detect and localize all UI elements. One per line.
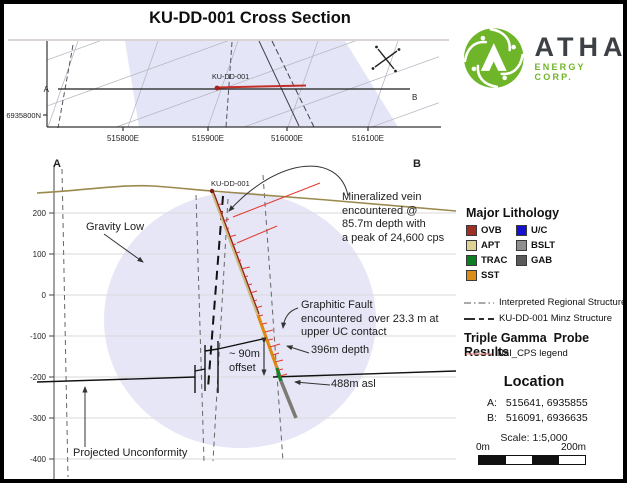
elev-tick: -100 (30, 332, 47, 341)
lithology-item: GAB (516, 253, 574, 268)
section-drillhole-label: KU-DD-001 (211, 179, 250, 188)
annotation-mineralized-vein: Mineralized vein encountered @ 85.7m dep… (342, 191, 472, 245)
elev-tick: -200 (30, 373, 47, 382)
annotation-offset: ~ 90m offset (229, 348, 260, 375)
plan-drillhole-collar (215, 86, 220, 91)
plan-label-a: A (44, 85, 50, 94)
elev-tick: 200 (33, 209, 47, 218)
annotation-asl: 488m asl (331, 378, 376, 392)
lithology-item: OVB (466, 223, 512, 238)
scale-bar (478, 455, 586, 465)
section-axis: 200 100 0 -100 -200 -300 -400 (30, 165, 54, 479)
section-label-a: A (53, 158, 61, 170)
annotation-projected-unconformity: Projected Unconformity (73, 447, 187, 461)
lithology-swatch (466, 225, 477, 236)
lithology-legend: OVB U/C APT BSLT TRAC GAB SST (466, 223, 574, 283)
location-a: A: 515641, 6935855 (487, 397, 588, 409)
atha-logo-icon (462, 26, 526, 90)
elev-tick: 100 (33, 250, 47, 259)
logo-name: ATHA (535, 34, 627, 60)
plan-easting-label: 516000E (271, 134, 303, 143)
annotation-gravity-low: Gravity Low (86, 221, 144, 235)
plan-easting-label: 515900E (192, 134, 224, 143)
lithology-swatch (516, 225, 527, 236)
lithology-item: APT (466, 238, 512, 253)
annotation-depth: 396m depth (311, 344, 369, 358)
plan-drillhole-label: KU-DD-001 (212, 72, 249, 81)
scalebar-labels: 0m 200m (476, 442, 586, 453)
gamma-legend-item: NaI_CPS legend (466, 348, 568, 359)
annotation-graphitic-fault: Graphitic Fault encountered over 23.3 m … (301, 299, 441, 340)
north-arrow-icon (372, 46, 401, 73)
structure-legend-minz: KU-DD-001 Minz Structure (464, 313, 612, 324)
plan-easting-label: 515800E (107, 134, 139, 143)
lithology-swatch (466, 255, 477, 266)
plan-view-map: 6935800N 515800E 515900E 516000E 516100E… (0, 38, 458, 150)
plan-label-b: B (412, 93, 417, 102)
section-label-b: B (413, 158, 421, 170)
location-title: Location (478, 374, 590, 390)
lithology-item: TRAC (466, 253, 512, 268)
lithology-swatch (516, 255, 527, 266)
lithology-swatch (466, 270, 477, 281)
structure-legend-regional: Interpreted Regional Structure (464, 297, 626, 308)
elev-tick: -400 (30, 455, 47, 464)
lithology-item: U/C (516, 223, 574, 238)
plan-northing-label: 6935800N (6, 111, 41, 120)
atha-logo: ATHA ENERGY CORP. (462, 26, 627, 90)
lithology-legend-title: Major Lithology (466, 206, 559, 220)
figure-title: KU-DD-001 Cross Section (40, 9, 460, 28)
hole-collar (210, 189, 214, 193)
plan-easting-label: 516100E (352, 134, 384, 143)
location-b: B: 516091, 6936635 (487, 412, 588, 424)
lithology-swatch (466, 240, 477, 251)
nai-cps-line-sample (466, 350, 492, 358)
atha-logo-text: ATHA ENERGY CORP. (535, 34, 627, 82)
lithology-item: SST (466, 268, 512, 283)
elev-tick: 0 (42, 291, 47, 300)
lithology-swatch (516, 240, 527, 251)
logo-subtitle: ENERGY CORP. (535, 62, 627, 82)
gravity-low-band (125, 41, 398, 127)
lithology-item: BSLT (516, 238, 574, 253)
elev-tick: -300 (30, 414, 47, 423)
regional-structure-line-sample (464, 299, 494, 307)
minz-structure-line-sample (464, 315, 494, 323)
